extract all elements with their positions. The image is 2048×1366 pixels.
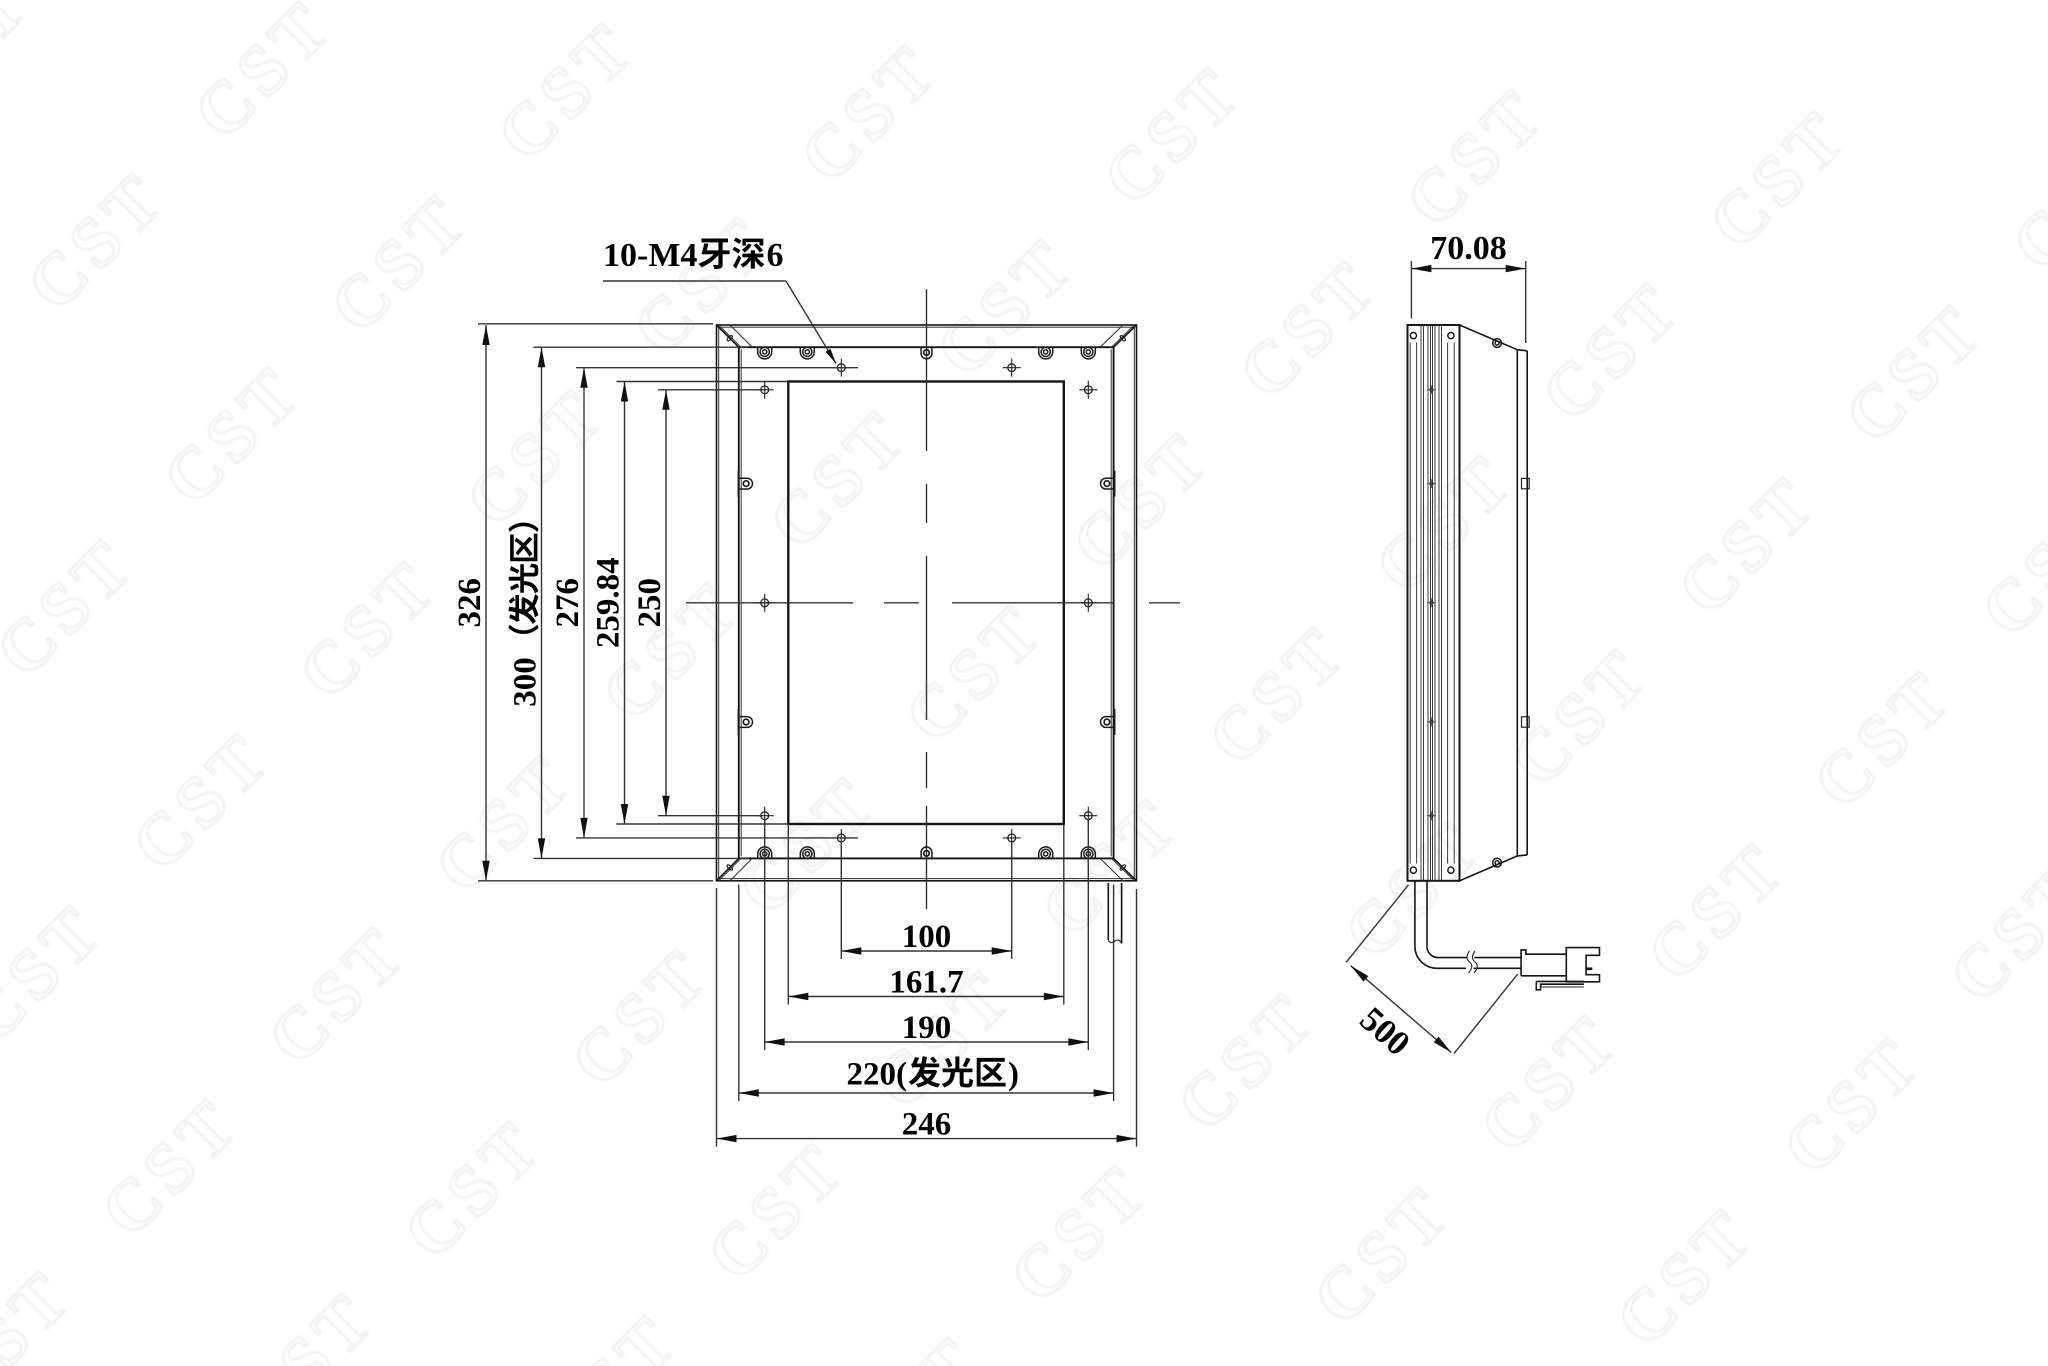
- svg-text:246: 246: [902, 1107, 952, 1143]
- svg-text:326: 326: [452, 578, 488, 628]
- svg-text:220(: 220(: [847, 1057, 908, 1093]
- svg-text:10-M4: 10-M4: [603, 237, 697, 274]
- svg-text:276: 276: [550, 578, 586, 628]
- svg-text:): ): [1008, 1057, 1019, 1093]
- svg-text:161.7: 161.7: [889, 965, 963, 1001]
- svg-text:70.08: 70.08: [1430, 230, 1507, 267]
- svg-text:6: 6: [767, 237, 784, 274]
- svg-text:100: 100: [902, 919, 952, 955]
- svg-text:259.84: 259.84: [591, 557, 627, 648]
- svg-text:190: 190: [902, 1010, 952, 1046]
- svg-text:300: 300: [508, 657, 544, 707]
- svg-text:250: 250: [632, 578, 668, 628]
